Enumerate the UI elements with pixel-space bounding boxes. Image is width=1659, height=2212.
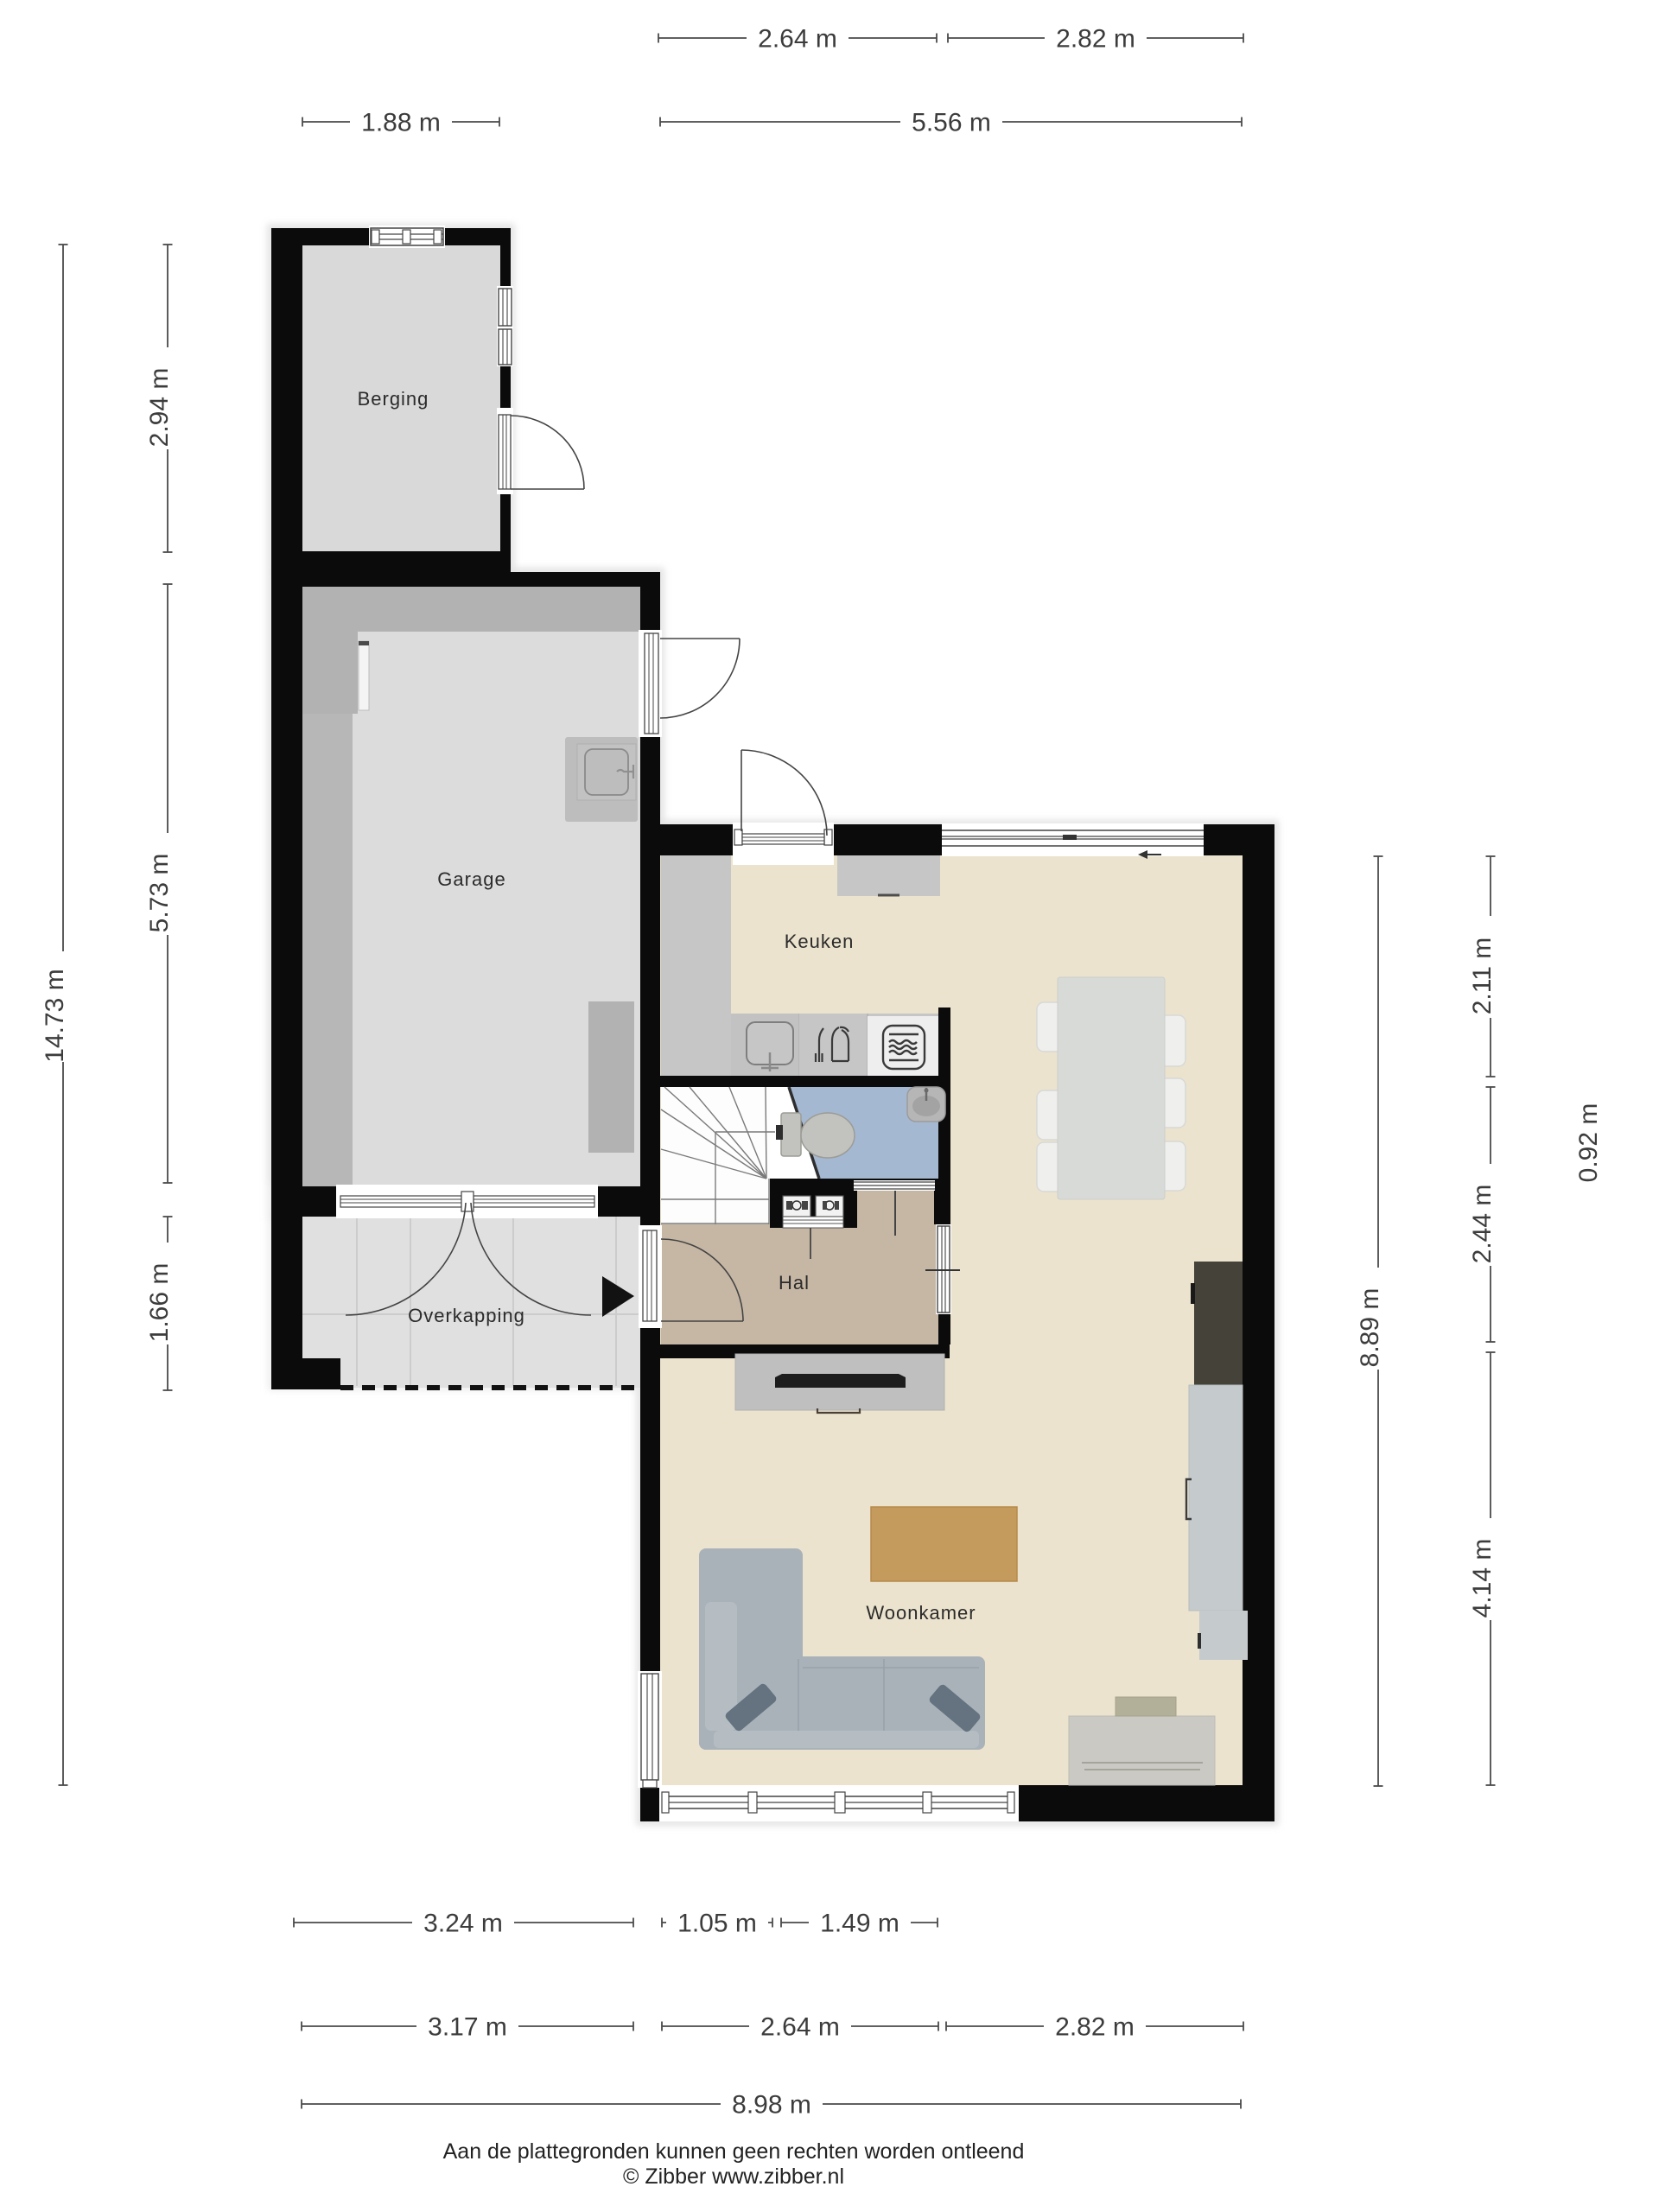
svg-text:Aan de plattegronden kunnen ge: Aan de plattegronden kunnen geen rechten… [443, 2139, 1025, 2164]
svg-text:Berging: Berging [358, 388, 429, 410]
svg-text:5.73 m: 5.73 m [145, 854, 174, 933]
svg-text:2.82 m: 2.82 m [1056, 25, 1135, 54]
svg-text:Hal: Hal [779, 1272, 810, 1294]
svg-text:14.73 m: 14.73 m [41, 969, 69, 1062]
svg-text:Woonkamer: Woonkamer [866, 1602, 976, 1624]
svg-text:© Zibber www.zibber.nl: © Zibber www.zibber.nl [623, 2164, 844, 2189]
svg-text:8.98 m: 8.98 m [732, 2091, 811, 2120]
svg-text:0.92 m: 0.92 m [1574, 1103, 1603, 1183]
svg-text:Overkapping: Overkapping [408, 1305, 525, 1326]
svg-text:5.56 m: 5.56 m [912, 109, 991, 137]
svg-text:1.88 m: 1.88 m [361, 109, 441, 137]
svg-text:2.94 m: 2.94 m [145, 368, 174, 448]
svg-text:2.82 m: 2.82 m [1055, 2013, 1135, 2042]
svg-text:8.89 m: 8.89 m [1356, 1288, 1384, 1368]
svg-text:1.05 m: 1.05 m [677, 1910, 757, 1938]
svg-text:4.14 m: 4.14 m [1468, 1539, 1497, 1618]
svg-text:1.66 m: 1.66 m [145, 1263, 174, 1343]
svg-text:3.24 m: 3.24 m [423, 1910, 503, 1938]
svg-text:2.64 m: 2.64 m [758, 25, 837, 54]
svg-text:1.49 m: 1.49 m [820, 1910, 899, 1938]
svg-text:3.17 m: 3.17 m [428, 2013, 507, 2042]
svg-text:2.64 m: 2.64 m [760, 2013, 840, 2042]
svg-text:2.44 m: 2.44 m [1468, 1185, 1497, 1264]
svg-text:2.11 m: 2.11 m [1468, 938, 1497, 1015]
svg-text:Keuken: Keuken [785, 931, 855, 952]
svg-text:Garage: Garage [437, 868, 505, 890]
